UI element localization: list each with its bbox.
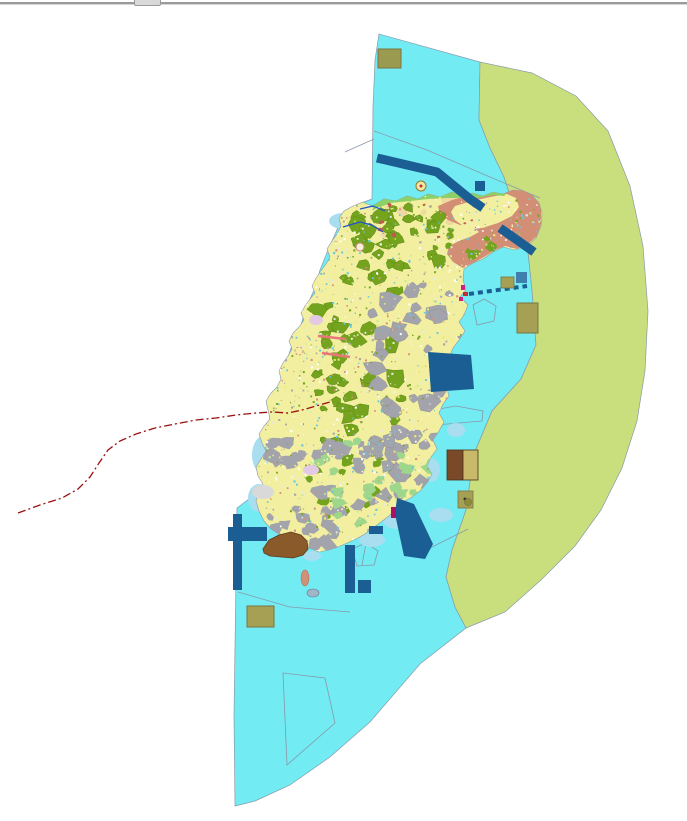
speckle [293, 416, 294, 417]
speckle [406, 217, 407, 218]
speckle [266, 285, 268, 287]
speckle [337, 258, 338, 259]
speckle [284, 449, 285, 450]
speckle [423, 250, 424, 251]
speckle [414, 234, 416, 236]
speckle [277, 273, 279, 275]
speckle [289, 325, 290, 326]
speckle [378, 339, 379, 340]
brown-facility-left [447, 450, 463, 480]
speckle [445, 237, 447, 239]
speckle [456, 266, 458, 268]
speckle [320, 442, 321, 443]
speckle [358, 330, 360, 332]
speckle [343, 509, 344, 510]
speckle [300, 451, 301, 452]
speckle [354, 221, 355, 222]
speckle [397, 341, 398, 342]
speckle [281, 317, 283, 319]
speckle [517, 217, 518, 218]
speckle [264, 277, 266, 279]
speckle [344, 371, 346, 373]
speckle [396, 277, 397, 278]
speckle [333, 520, 334, 521]
speckle [331, 515, 333, 517]
speckle [439, 267, 441, 269]
speckle [421, 418, 422, 419]
speckle [274, 257, 275, 258]
speckle [346, 340, 348, 342]
speckle [378, 480, 379, 481]
speckle [282, 404, 283, 405]
speckle [293, 318, 294, 319]
speckle [463, 218, 465, 220]
speckle [368, 240, 370, 242]
speckle [417, 365, 418, 366]
speckle [356, 307, 357, 308]
speckle [414, 435, 416, 437]
speckle [418, 206, 420, 208]
speckle [301, 199, 303, 201]
speckle [261, 219, 263, 221]
speckle [307, 390, 309, 392]
speckle [365, 230, 367, 232]
speckle [258, 239, 260, 241]
speckle [383, 304, 385, 306]
speckle [365, 332, 367, 334]
speckle [415, 228, 416, 229]
speckle [305, 325, 307, 327]
speckle [334, 346, 335, 347]
speckle [439, 286, 441, 288]
speckle [312, 197, 313, 198]
speckle [461, 265, 462, 266]
speckle [307, 296, 308, 297]
speckle [266, 223, 268, 225]
speckle [374, 410, 376, 412]
map-canvas[interactable] [0, 0, 687, 821]
speckle [422, 398, 424, 400]
speckle [287, 234, 289, 236]
speckle [377, 274, 378, 275]
speckle [351, 197, 353, 199]
speckle [294, 401, 295, 402]
speckle [395, 384, 396, 385]
speckle [429, 404, 430, 405]
speckle [474, 213, 476, 215]
speckle [334, 498, 335, 499]
speckle [533, 209, 534, 210]
speckle [271, 422, 273, 424]
speckle [275, 518, 277, 520]
speckle [389, 434, 391, 436]
speckle [368, 443, 370, 445]
speckle [262, 268, 263, 269]
speckle [482, 239, 483, 240]
speckle [355, 357, 357, 359]
speckle [415, 489, 416, 490]
speckle [345, 316, 346, 317]
speckle [271, 328, 272, 329]
speckle [360, 213, 361, 214]
speckle [459, 270, 460, 271]
speckle [476, 211, 477, 212]
speckle [287, 444, 288, 445]
speckle [348, 279, 349, 280]
speckle [379, 337, 380, 338]
speckle [389, 270, 390, 271]
speckle [337, 331, 339, 333]
speckle [453, 240, 455, 242]
speckle [413, 214, 415, 216]
speckle [344, 346, 346, 348]
speckle [307, 290, 309, 292]
speckle [408, 310, 409, 311]
speckle [436, 200, 437, 201]
speckle [268, 438, 270, 440]
speckle [290, 430, 292, 432]
speckle [486, 244, 488, 246]
speckle [364, 213, 366, 215]
speckle [400, 460, 402, 462]
speckle [383, 263, 384, 264]
speckle [512, 225, 513, 226]
speckle [349, 216, 350, 217]
speckle [364, 231, 365, 232]
speckle [448, 251, 450, 253]
speckle [342, 407, 344, 409]
speckle [337, 527, 339, 529]
speckle [432, 318, 434, 320]
speckle [302, 248, 303, 249]
speckle [347, 483, 349, 485]
speckle [473, 261, 474, 262]
speckle [310, 252, 311, 253]
speckle [281, 450, 282, 451]
speckle [335, 243, 336, 244]
speckle [527, 213, 528, 214]
speckle [290, 455, 292, 457]
speckle [404, 359, 406, 361]
speckle [356, 309, 357, 310]
speckle [407, 430, 408, 431]
speckle [353, 249, 355, 251]
speckle [275, 452, 276, 453]
speckle [399, 429, 401, 431]
speckle [272, 368, 273, 369]
speckle [367, 515, 369, 517]
speckle [290, 510, 292, 512]
speckle [269, 482, 270, 483]
speckle [431, 225, 433, 227]
speckle [346, 373, 347, 374]
speckle [420, 293, 421, 294]
speckle [422, 227, 423, 228]
speckle [376, 484, 378, 486]
speckle [336, 531, 338, 533]
speckle [337, 529, 338, 530]
speckle [357, 334, 359, 336]
speckle [435, 301, 437, 303]
speckle [346, 298, 348, 300]
speckle [434, 278, 436, 280]
speckle [274, 321, 275, 322]
speckle [281, 368, 282, 369]
speckle [268, 453, 270, 455]
speckle [303, 494, 305, 496]
shallow-water-item [303, 551, 321, 561]
speckle [292, 275, 293, 276]
speckle [277, 334, 278, 335]
olive-buoy [465, 499, 472, 506]
speckle [354, 368, 355, 369]
speckle [299, 307, 301, 309]
speckle [306, 453, 307, 454]
speckle [282, 210, 284, 212]
speckle [313, 380, 314, 381]
speckle [528, 198, 530, 200]
speckle [409, 261, 411, 263]
speckle [300, 370, 302, 372]
speckle [316, 425, 318, 427]
speckle [537, 215, 539, 217]
speckle [338, 456, 339, 457]
speckle [259, 241, 260, 242]
speckle [482, 230, 484, 232]
speckle [508, 206, 510, 208]
speckle [294, 530, 296, 532]
speckle [271, 213, 272, 214]
speckle [521, 215, 523, 217]
speckle [488, 198, 490, 200]
speckle [428, 414, 429, 415]
speckle [260, 280, 262, 282]
speckle [431, 256, 432, 257]
speckle [440, 228, 442, 230]
speckle [338, 359, 340, 361]
speckle [306, 523, 307, 524]
speckle [306, 386, 307, 387]
speckle [347, 352, 349, 354]
speckle [321, 219, 322, 220]
speckle [370, 302, 371, 303]
speckle [342, 269, 343, 270]
speckle [436, 271, 437, 272]
speckle [358, 363, 359, 364]
speckle [388, 211, 390, 213]
speckle [378, 396, 380, 398]
speckle [454, 272, 456, 274]
speckle [347, 250, 349, 252]
speckle [434, 271, 436, 273]
speckle [288, 486, 289, 487]
speckle [310, 412, 311, 413]
speckle [324, 341, 325, 342]
speckle [263, 210, 264, 211]
speckle [342, 532, 343, 533]
speckle [311, 201, 312, 202]
speckle [276, 479, 278, 481]
speckle [419, 259, 420, 260]
speckle [365, 499, 367, 501]
speckle [415, 441, 417, 443]
speckle [417, 235, 419, 237]
speckle [381, 236, 383, 238]
speckle [439, 408, 441, 410]
speckle [350, 360, 351, 361]
speckle [399, 214, 401, 216]
speckle [295, 395, 297, 397]
speckle [265, 429, 266, 430]
speckle [349, 539, 351, 541]
speckle [408, 353, 410, 355]
speckle [319, 288, 320, 289]
speckle [387, 505, 388, 506]
speckle [359, 298, 361, 300]
speckle [293, 406, 294, 407]
speckle [266, 508, 267, 509]
speckle [411, 270, 412, 271]
speckle [349, 287, 351, 289]
speckle [399, 253, 400, 254]
speckle [340, 343, 341, 344]
speckle [301, 279, 303, 281]
speckle [325, 440, 327, 442]
speckle [346, 457, 348, 459]
speckle [290, 509, 291, 510]
speckle [274, 267, 276, 269]
speckle [299, 319, 300, 320]
speckle [304, 274, 306, 276]
speckle [420, 389, 421, 390]
speckle [409, 384, 411, 386]
speckle [489, 209, 490, 210]
speckle [378, 289, 379, 290]
speckle [415, 469, 416, 470]
speckle [303, 371, 305, 373]
speckle [292, 318, 293, 319]
speckle [369, 287, 371, 289]
speckle [337, 430, 339, 432]
speckle [346, 508, 348, 510]
speckle [350, 477, 352, 479]
speckle [394, 392, 395, 393]
speckle [441, 281, 443, 283]
speckle [530, 212, 532, 214]
speckle [324, 517, 326, 519]
speckle [366, 199, 368, 201]
speckle [391, 482, 393, 484]
speckle [297, 435, 299, 437]
basin-south-square [358, 580, 371, 593]
speckle [294, 314, 296, 316]
speckle [343, 379, 345, 381]
speckle [355, 371, 357, 373]
speckle [264, 213, 265, 214]
speckle [283, 329, 284, 330]
speckle [435, 316, 436, 317]
speckle [303, 479, 305, 481]
speckle [515, 246, 516, 247]
speckle [397, 399, 399, 401]
speckle [317, 482, 318, 483]
speckle [394, 503, 395, 504]
speckle [423, 461, 425, 463]
speckle [352, 538, 354, 540]
speckle [401, 474, 402, 475]
speckle [260, 427, 262, 429]
top-ruler-line [0, 2, 687, 5]
speckle [337, 497, 339, 499]
speckle [394, 431, 396, 433]
speckle [350, 326, 352, 328]
speckle [306, 304, 308, 306]
speckle [299, 375, 300, 376]
speckle [387, 465, 388, 466]
speckle [341, 217, 343, 219]
speckle [352, 428, 354, 430]
speckle [399, 412, 401, 414]
speckle [376, 352, 378, 354]
speckle [273, 410, 274, 411]
speckle [397, 359, 398, 360]
speckle [439, 197, 441, 199]
speckle [309, 215, 310, 216]
speckle [283, 276, 285, 278]
speckle [275, 463, 276, 464]
speckle [294, 494, 296, 496]
speckle [481, 220, 483, 222]
speckle [415, 458, 417, 460]
speckle [443, 343, 445, 345]
ruler-slider-handle[interactable] [134, 0, 161, 6]
speckle [407, 256, 409, 258]
speckle [277, 291, 279, 293]
speckle [313, 227, 315, 229]
speckle [277, 292, 279, 294]
speckle [346, 217, 348, 219]
speckle [337, 303, 338, 304]
speckle [314, 428, 316, 430]
speckle [336, 436, 338, 438]
speckle [316, 492, 318, 494]
speckle [505, 239, 507, 241]
speckle [319, 524, 320, 525]
speckle [313, 463, 315, 465]
speckle [470, 240, 471, 241]
speckle [317, 463, 319, 465]
speckle [293, 511, 295, 513]
speckle [468, 250, 469, 251]
speckle [532, 222, 533, 223]
speckle [378, 508, 380, 510]
speckle [264, 244, 265, 245]
speckle [333, 252, 335, 254]
speckle [446, 216, 447, 217]
speckle [291, 407, 293, 409]
speckle [266, 450, 267, 451]
speckle [351, 301, 352, 302]
speckle [369, 390, 371, 392]
speckle [303, 361, 304, 362]
speckle [318, 550, 320, 552]
speckle [296, 393, 297, 394]
speckle [393, 325, 395, 327]
speckle [326, 431, 327, 432]
speckle [323, 379, 325, 381]
speckle [391, 218, 393, 220]
islet-salmon-item [301, 570, 309, 586]
